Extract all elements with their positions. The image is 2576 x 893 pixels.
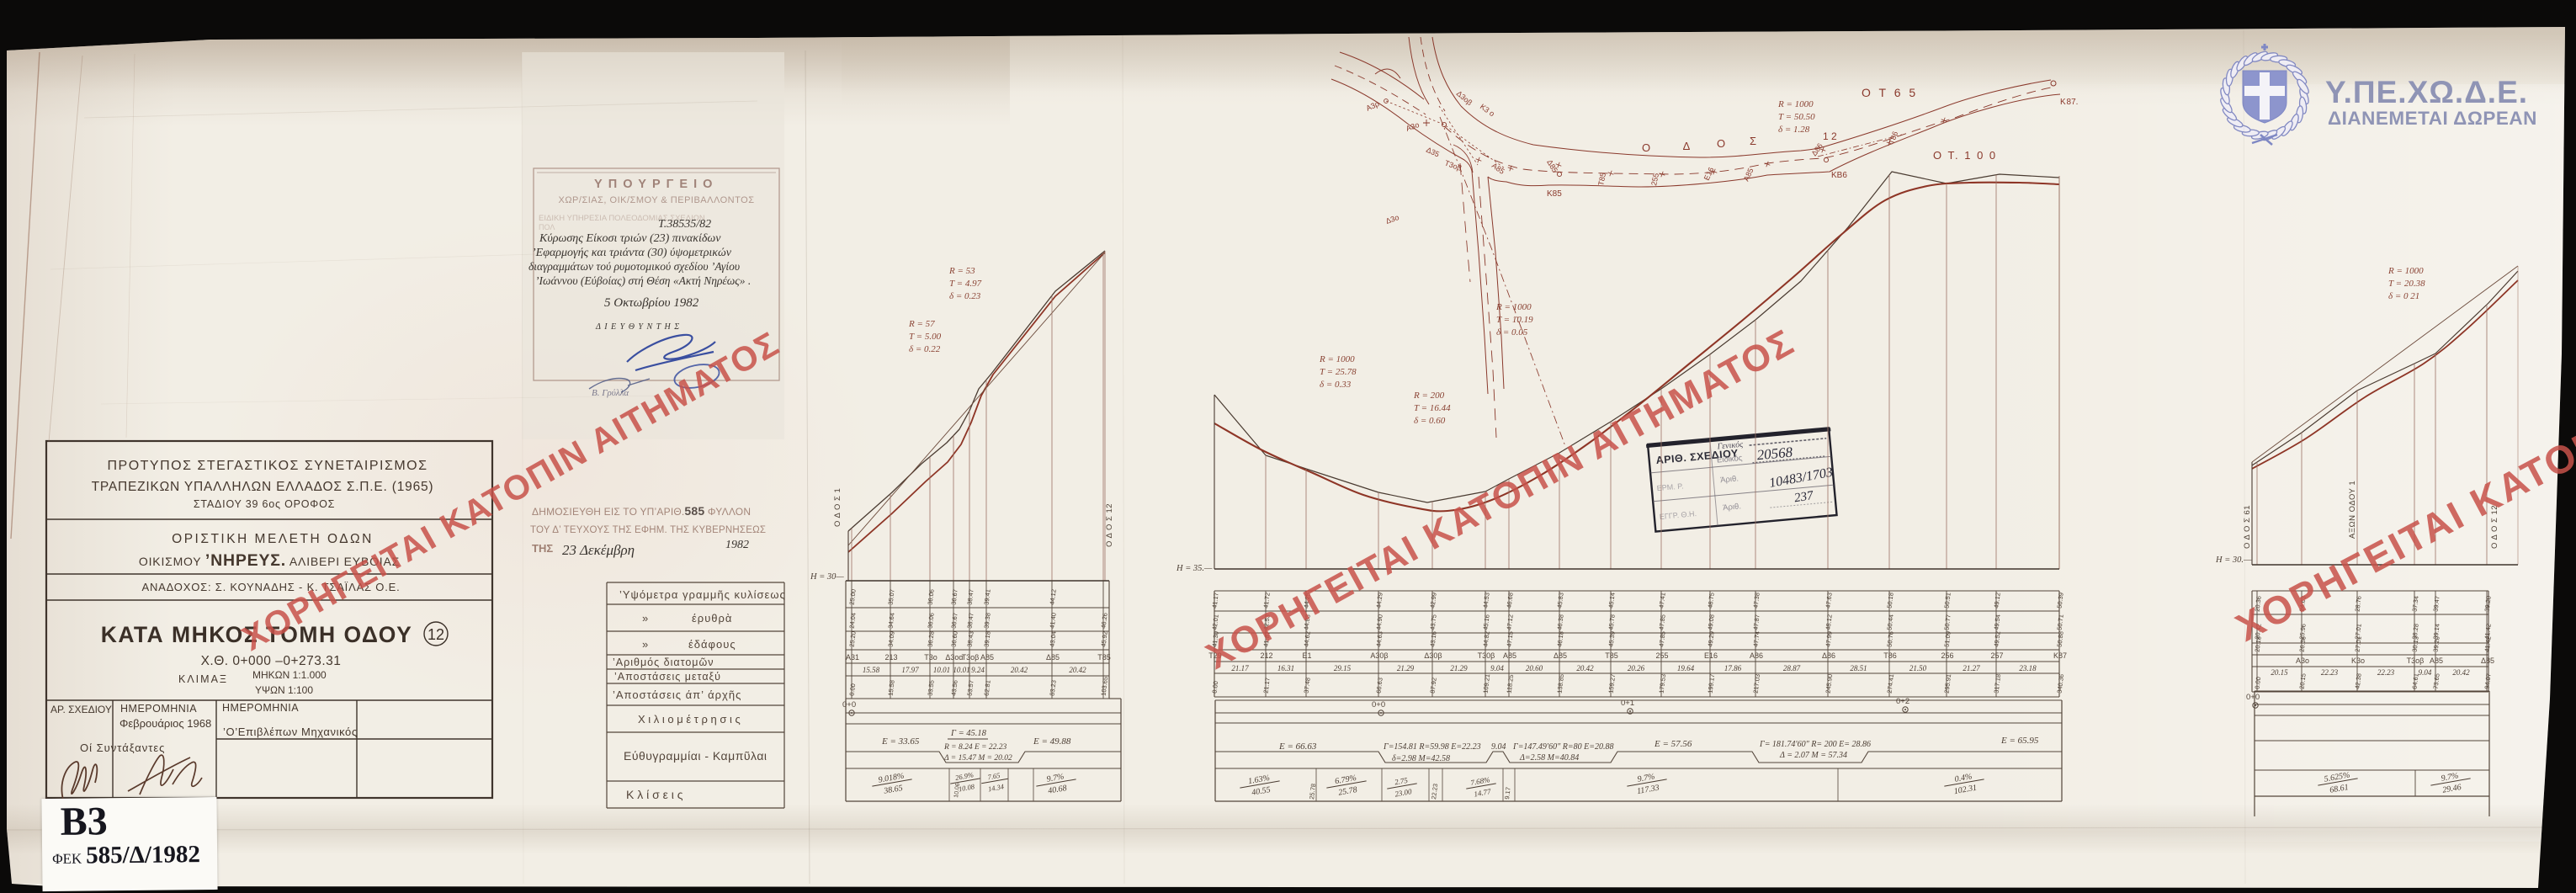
svg-text:50.39: 50.39 xyxy=(2056,593,2065,609)
svg-text:Είδικός: Είδικός xyxy=(1717,454,1744,465)
svg-text:9.7%: 9.7% xyxy=(1046,772,1065,784)
svg-text:Δ = 15.47 Μ = 20.02: Δ = 15.47 Μ = 20.02 xyxy=(943,754,1012,763)
svg-text:Υ Π Ο Υ Ρ Γ Ε Ι Ο: Υ Π Ο Υ Ρ Γ Ε Ι Ο xyxy=(594,178,714,191)
svg-text:46.68: 46.68 xyxy=(1506,593,1515,609)
svg-text:40.55: 40.55 xyxy=(1251,785,1271,798)
svg-text:28.51: 28.51 xyxy=(1850,664,1867,672)
svg-text:47.15: 47.15 xyxy=(1506,631,1515,648)
svg-text:47.63: 47.63 xyxy=(1824,593,1834,609)
svg-text:Γ = 45.18: Γ = 45.18 xyxy=(950,729,987,738)
svg-text:44.82: 44.82 xyxy=(1482,631,1491,648)
svg-text:Ε = 57.56: Ε = 57.56 xyxy=(1654,739,1692,749)
svg-text:Δ85: Δ85 xyxy=(1554,651,1567,660)
svg-text:δ = 0 21: δ = 0 21 xyxy=(2388,291,2419,301)
svg-text:20.42: 20.42 xyxy=(1069,666,1086,674)
svg-text:44.12: 44.12 xyxy=(1049,589,1058,606)
svg-text:0.4%: 0.4% xyxy=(1954,772,1973,784)
svg-text:41.42: 41.42 xyxy=(2483,636,2493,653)
svg-text:21.17: 21.17 xyxy=(1231,664,1249,672)
svg-text:Η = 30.—: Η = 30.— xyxy=(2215,555,2252,565)
svg-text:21.29: 21.29 xyxy=(1450,664,1468,672)
svg-text:213: 213 xyxy=(884,653,897,662)
svg-text:48.75: 48.75 xyxy=(1707,593,1716,609)
svg-text:Α30β: Α30β xyxy=(1370,651,1388,660)
svg-text:40.68: 40.68 xyxy=(1047,784,1067,796)
svg-text:245.90: 245.90 xyxy=(1824,673,1835,694)
svg-text:20568: 20568 xyxy=(1756,444,1794,463)
svg-text:ΑΡ. ΣΧΕΔΙΟΥ: ΑΡ. ΣΧΕΔΙΟΥ xyxy=(50,704,112,715)
svg-text:Γ=147.49′60″ R=80 Ε=20.88: Γ=147.49′60″ R=80 Ε=20.88 xyxy=(1512,742,1614,752)
svg-text:Άριθ.: Άριθ. xyxy=(1723,502,1742,513)
svg-text:Δ86: Δ86 xyxy=(1822,651,1835,660)
svg-text:20.42: 20.42 xyxy=(1576,664,1594,672)
svg-text:14.34: 14.34 xyxy=(987,782,1005,793)
svg-text:37.34: 37.34 xyxy=(2411,596,2420,613)
svg-text:23.00: 23.00 xyxy=(1394,787,1413,798)
svg-text:Εύθυγραμμίαι - Καμπῦλαι: Εύθυγραμμίαι - Καμπῦλαι xyxy=(624,749,767,763)
svg-text:36.28: 36.28 xyxy=(927,631,936,648)
svg-text:20.15: 20.15 xyxy=(2298,673,2308,690)
svg-text:Γ=154.81 R=59.98 Ε=22.23: Γ=154.81 R=59.98 Ε=22.23 xyxy=(1383,742,1481,752)
svg-text:38.43: 38.43 xyxy=(966,631,975,648)
svg-text:Τ3ο: Τ3ο xyxy=(924,653,937,662)
svg-text:50.71: 50.71 xyxy=(2056,614,2065,631)
svg-text:Ο: Ο xyxy=(1717,137,1725,150)
svg-text:Γ= 181.74′60″ R= 200 Ε= 28.: Γ= 181.74′60″ R= 200 Ε= 28.86 xyxy=(1759,740,1871,749)
svg-text:50.51: 50.51 xyxy=(1943,593,1952,609)
svg-text:102.31: 102.31 xyxy=(1953,784,1978,797)
svg-text:27.01: 27.01 xyxy=(2354,636,2363,653)
svg-text:20.60: 20.60 xyxy=(1526,664,1543,672)
svg-text:20.42: 20.42 xyxy=(2452,668,2470,677)
svg-text:29.15: 29.15 xyxy=(1334,664,1352,672)
svg-text:36.67: 36.67 xyxy=(950,613,959,630)
svg-text:41.17: 41.17 xyxy=(1211,593,1220,609)
svg-text:159.27: 159.27 xyxy=(1607,673,1617,694)
svg-text:47.85: 47.85 xyxy=(1658,614,1667,631)
svg-text:10483/1703: 10483/1703 xyxy=(1768,465,1834,491)
svg-text:109.21: 109.21 xyxy=(1482,673,1492,694)
svg-text:68.61: 68.61 xyxy=(2329,783,2349,795)
svg-text:Α3ο: Α3ο xyxy=(2296,656,2309,665)
svg-text:22.23: 22.23 xyxy=(1430,784,1439,800)
svg-text:33.55: 33.55 xyxy=(927,680,936,697)
svg-text:δ = 0.23: δ = 0.23 xyxy=(949,291,981,301)
svg-text:45.16: 45.16 xyxy=(1482,614,1491,631)
svg-text:Τ30β: Τ30β xyxy=(1478,651,1495,660)
svg-text:35.07: 35.07 xyxy=(887,589,896,606)
svg-text:49.12: 49.12 xyxy=(1993,593,2002,609)
svg-text:199.17: 199.17 xyxy=(1707,673,1717,694)
svg-text:ΥΨΩΝ 1:100: ΥΨΩΝ 1:100 xyxy=(255,684,313,696)
svg-text:T = 10.19: T = 10.19 xyxy=(1496,315,1533,325)
svg-text:R = 200: R = 200 xyxy=(1413,391,1445,401)
svg-text:39.38: 39.38 xyxy=(983,613,992,630)
svg-text:R = 1000: R = 1000 xyxy=(2387,266,2424,276)
svg-text:0+0: 0+0 xyxy=(2246,693,2260,702)
svg-text:έδάφους: έδάφους xyxy=(688,638,736,651)
svg-text:Κ3ο: Κ3ο xyxy=(2351,656,2365,665)
svg-text:12: 12 xyxy=(428,626,444,643)
svg-text:Δ30β: Δ30β xyxy=(1424,651,1442,660)
svg-text:117.33: 117.33 xyxy=(1636,784,1660,796)
svg-text:256: 256 xyxy=(1941,651,1953,660)
svg-text:73.65: 73.65 xyxy=(2432,673,2441,690)
svg-text:38.47: 38.47 xyxy=(966,613,975,630)
svg-text:T = 20.38: T = 20.38 xyxy=(2388,279,2425,289)
svg-text:R = 8.24 Ε = 22.23: R = 8.24 Ε = 22.23 xyxy=(943,743,1007,752)
svg-text:Κ λ ί σ ε ι ς: Κ λ ί σ ε ι ς xyxy=(626,788,683,801)
svg-text:ΑΝΑΔΟΧΟΣ: Σ. ΚΟΥΝΑΔΗΣ - Κ. Τ: ΑΝΑΔΟΧΟΣ: Σ. ΚΟΥΝΑΔΗΣ - Κ. ΤΣΑΪΛΑΣ Ο.Ε. xyxy=(141,581,400,593)
svg-text:41.87: 41.87 xyxy=(1262,631,1272,648)
svg-text:26.36: 26.36 xyxy=(2298,636,2308,653)
svg-text:Α85: Α85 xyxy=(1742,167,1755,183)
svg-text:Τ3οβ: Τ3οβ xyxy=(1443,158,1463,172)
svg-text:δ = 0.33: δ = 0.33 xyxy=(1320,380,1352,390)
svg-text:Δ=2.58 Μ=40.84: Δ=2.58 Μ=40.84 xyxy=(1519,753,1579,763)
svg-text:15.58: 15.58 xyxy=(887,680,896,697)
svg-text:21.17: 21.17 xyxy=(1262,678,1272,694)
svg-text:Α85: Α85 xyxy=(2430,656,2443,665)
svg-text:Ε1: Ε1 xyxy=(1302,651,1311,660)
svg-text:36.06: 36.06 xyxy=(927,613,936,630)
svg-text:Κ3 ο: Κ3 ο xyxy=(1479,102,1496,118)
svg-text:Κύρωσης Είκοσι τριών (23) πινα: Κύρωσης Είκοσι τριών (23) πινακίδων xyxy=(539,232,721,245)
svg-text:ΠΟΛ: ΠΟΛ xyxy=(539,223,555,231)
svg-text:Α86: Α86 xyxy=(1750,651,1763,660)
svg-text:ΚΒ6: ΚΒ6 xyxy=(1831,171,1847,180)
svg-text:46.18: 46.18 xyxy=(1556,631,1565,648)
svg-text:274.41: 274.41 xyxy=(1886,673,1896,694)
svg-text:ΟΡΙΣΤΙΚΗ ΜΕΛΕΤΗ ΟΔΩΝ: ΟΡΙΣΤΙΚΗ ΜΕΛΕΤΗ ΟΔΩΝ xyxy=(172,532,374,546)
svg-text:19.64: 19.64 xyxy=(1677,664,1695,672)
svg-text:Α85: Α85 xyxy=(980,653,994,662)
svg-text:43.16: 43.16 xyxy=(1429,631,1438,648)
svg-text:29.46: 29.46 xyxy=(2441,783,2462,795)
svg-text:25.78: 25.78 xyxy=(1308,784,1317,800)
svg-text:49.54: 49.54 xyxy=(1993,614,2002,631)
svg-text:έρυθρὰ: έρυθρὰ xyxy=(692,612,732,625)
svg-text:47.74: 47.74 xyxy=(1752,631,1761,648)
svg-text:ΤΗΣ: ΤΗΣ xyxy=(532,542,553,555)
svg-text:0.00: 0.00 xyxy=(1211,681,1220,694)
svg-text:T = 16.44: T = 16.44 xyxy=(1414,403,1451,413)
svg-text:46.38: 46.38 xyxy=(1556,614,1565,631)
svg-text:41.40: 41.40 xyxy=(1049,613,1058,630)
svg-text:47.38: 47.38 xyxy=(1752,593,1761,609)
svg-text:24.04: 24.04 xyxy=(848,613,858,630)
svg-text:0+0: 0+0 xyxy=(842,700,856,710)
svg-text:44.83: 44.83 xyxy=(1303,614,1312,631)
svg-text:20.36: 20.36 xyxy=(2254,596,2263,613)
svg-text:47.87: 47.87 xyxy=(1752,614,1761,631)
svg-text:Η = 30—: Η = 30— xyxy=(810,572,844,582)
svg-text:T = 4.97: T = 4.97 xyxy=(949,279,982,289)
svg-text:0.00: 0.00 xyxy=(2254,677,2263,690)
svg-text:36.06: 36.06 xyxy=(927,589,936,606)
svg-text:43.56: 43.56 xyxy=(950,680,959,697)
svg-text:42.38: 42.38 xyxy=(2354,673,2363,690)
svg-text:237: 237 xyxy=(1793,489,1815,506)
svg-text:9.04: 9.04 xyxy=(1490,664,1504,672)
svg-text:Α3ρ: Α3ρ xyxy=(1365,99,1381,113)
svg-text:50.77: 50.77 xyxy=(1943,614,1952,631)
svg-text:R = 1000: R = 1000 xyxy=(1319,354,1355,364)
svg-text:39.20: 39.20 xyxy=(2483,596,2493,613)
svg-text:R = 57: R = 57 xyxy=(908,319,935,329)
svg-text:9.17: 9.17 xyxy=(1503,787,1512,800)
svg-text:δ = 0.22: δ = 0.22 xyxy=(909,344,941,354)
svg-text:0+0: 0+0 xyxy=(1372,700,1385,710)
svg-text:δ = 0.60: δ = 0.60 xyxy=(1414,416,1446,426)
svg-text:Κ85: Κ85 xyxy=(1547,189,1562,199)
svg-text:217.03: 217.03 xyxy=(1752,673,1762,694)
svg-text:50.18: 50.18 xyxy=(1886,593,1895,609)
svg-text:17.97: 17.97 xyxy=(901,666,919,674)
svg-text:45.83: 45.83 xyxy=(1556,593,1565,609)
svg-text:Δ = 2.07 Μ = 57.34: Δ = 2.07 Μ = 57.34 xyxy=(1779,751,1847,760)
svg-text:ΤΡΑΠΕΖΙΚΩΝ ΥΠΑΛΛΗΛΩΝ ΕΛΛΑΔΟΣ: ΤΡΑΠΕΖΙΚΩΝ ΥΠΑΛΛΗΛΩΝ ΕΛΛΑΔΟΣ Σ.Π.Ε. (196… xyxy=(92,480,434,494)
svg-text:Κ87: Κ87 xyxy=(2053,651,2067,660)
svg-text:Ο Δ Ο Σ 61: Ο Δ Ο Σ 61 xyxy=(2243,505,2252,549)
svg-text:T = 50.50: T = 50.50 xyxy=(1778,112,1815,122)
svg-text:Ε = 49.88: Ε = 49.88 xyxy=(1033,736,1071,747)
svg-text:51.09: 51.09 xyxy=(1943,631,1952,648)
svg-text:ΠΡΟΤΥΠΟΣ ΣΤΕΓΑΣΤΙΚΟΣ ΣΥΝΕΤΑΙ: ΠΡΟΤΥΠΟΣ ΣΤΕΓΑΣΤΙΚΟΣ ΣΥΝΕΤΑΙΡΙΣΜΟΣ xyxy=(107,459,428,473)
svg-text:ΚΛΙΜΑΞ: ΚΛΙΜΑΞ xyxy=(178,673,228,685)
svg-text:9.24: 9.24 xyxy=(971,666,985,674)
svg-text:14.77: 14.77 xyxy=(1474,787,1492,798)
svg-text:10.06: 10.06 xyxy=(953,783,961,798)
svg-text:25.78: 25.78 xyxy=(1337,785,1357,798)
svg-text:»: » xyxy=(642,638,648,651)
svg-text:Δ85: Δ85 xyxy=(2481,656,2494,665)
svg-text:340.36: 340.36 xyxy=(2056,673,2066,694)
svg-text:22.23: 22.23 xyxy=(2321,668,2339,677)
svg-text:47.85: 47.85 xyxy=(1658,631,1667,648)
svg-text:42.01: 42.01 xyxy=(1211,614,1220,631)
svg-text:15.58: 15.58 xyxy=(863,666,880,674)
svg-text:ΗΜΕΡΟΜΗΝΙΑ: ΗΜΕΡΟΜΗΝΙΑ xyxy=(222,702,299,714)
svg-text:R = 53: R = 53 xyxy=(948,266,975,276)
svg-text:Φεβρουάριος 1968: Φεβρουάριος 1968 xyxy=(120,717,211,730)
svg-text:41.30: 41.30 xyxy=(1211,631,1220,648)
svg-text:ΗΜΕΡΟΜΗΝΙΑ: ΗΜΕΡΟΜΗΝΙΑ xyxy=(120,703,197,715)
svg-text:62.81: 62.81 xyxy=(983,680,992,697)
svg-text:179.53: 179.53 xyxy=(1658,673,1668,694)
svg-text:Ε = 65.95: Ε = 65.95 xyxy=(2000,736,2039,746)
svg-text:Ο Δ Ο Σ 1: Ο Δ Ο Σ 1 xyxy=(833,488,842,527)
svg-text:49.29: 49.29 xyxy=(1707,631,1716,648)
svg-text:Τ86: Τ86 xyxy=(1887,130,1899,146)
svg-text:38.47: 38.47 xyxy=(966,589,975,606)
svg-text:34.09: 34.09 xyxy=(887,631,896,648)
svg-text:R = 1000: R = 1000 xyxy=(1777,99,1814,109)
svg-text:’Ο’Επιβλέπων Μηχανικός: ’Ο’Επιβλέπων Μηχανικός xyxy=(223,726,358,738)
svg-text:20.42: 20.42 xyxy=(1011,666,1028,674)
svg-text:43.04: 43.04 xyxy=(1049,631,1058,648)
svg-text:Α85: Α85 xyxy=(1503,651,1516,660)
svg-text:Τ85: Τ85 xyxy=(1596,172,1607,186)
svg-text:44.90: 44.90 xyxy=(1375,614,1384,631)
svg-text:44.53: 44.53 xyxy=(1482,593,1491,609)
svg-text:Ε = 33.65: Ε = 33.65 xyxy=(881,736,920,747)
svg-text:47.99: 47.99 xyxy=(1824,631,1834,648)
svg-text:41.72: 41.72 xyxy=(1262,593,1272,609)
svg-text:255: 255 xyxy=(1655,651,1668,660)
svg-text:83.23: 83.23 xyxy=(1049,680,1058,697)
svg-text:44.63: 44.63 xyxy=(1375,631,1384,648)
svg-text:Δ85: Δ85 xyxy=(1046,653,1060,662)
svg-text:66.63: 66.63 xyxy=(1375,678,1384,694)
svg-text:Τ85: Τ85 xyxy=(1605,651,1618,660)
svg-text:34.64: 34.64 xyxy=(887,613,896,630)
svg-text:ΟΙΚΙΣΜΟΥ ’ΝΗΡΕΥΣ. ΑΛΙΒΕΡΙ ΕΥΒΟ: ΟΙΚΙΣΜΟΥ ’ΝΗΡΕΥΣ. ΑΛΙΒΕΡΙ ΕΥΒΟΙΑΣ xyxy=(139,551,400,570)
svg-text:’Υψόμετρα γραμμῆς κυλίσεως: ’Υψόμετρα γραμμῆς κυλίσεως xyxy=(619,588,786,601)
svg-text:2.75: 2.75 xyxy=(1394,776,1409,787)
svg-text:Δ: Δ xyxy=(1683,140,1691,152)
svg-text:24.63: 24.63 xyxy=(2298,596,2308,613)
svg-text:50.88: 50.88 xyxy=(2056,631,2065,648)
svg-text:20.15: 20.15 xyxy=(2271,668,2288,677)
svg-text:Τ29: Τ29 xyxy=(1208,651,1222,660)
svg-text:49.52: 49.52 xyxy=(1993,631,2002,648)
svg-text:20.26: 20.26 xyxy=(1628,664,1645,672)
svg-text:118.25: 118.25 xyxy=(1506,674,1516,694)
svg-text:Α31: Α31 xyxy=(846,653,859,662)
svg-text:9.7%: 9.7% xyxy=(1637,772,1655,784)
svg-text:Χ ι λ ι ο μ έ τ ρ η σ ι ς: Χ ι λ ι ο μ έ τ ρ η σ ι ς xyxy=(638,713,741,726)
svg-text:28.76: 28.76 xyxy=(2354,596,2363,613)
svg-text:ΣΤΑΔΙΟΥ 39 6ος ΟΡΟΦΟΣ: ΣΤΑΔΙΟΥ 39 6ος ΟΡΟΦΟΣ xyxy=(194,498,335,510)
svg-text:44.62: 44.62 xyxy=(1303,631,1312,648)
svg-text:T = 25.78: T = 25.78 xyxy=(1320,367,1357,377)
svg-text:Ε16: Ε16 xyxy=(1704,651,1718,660)
svg-text:ΔΗΜΟΣΙΕΥΘΗ ΕΙΣ ΤΟ ΥΠ’ΑΡΙΘ.585: ΔΗΜΟΣΙΕΥΘΗ ΕΙΣ ΤΟ ΥΠ’ΑΡΙΘ.585 ΦΥΛΛΟΝ xyxy=(532,504,751,518)
svg-text:ΚΑΤΑ ΜΗΚΟΣ ΤΟΜΗ ΟΔΟΥ: ΚΑΤΑ ΜΗΚΟΣ ΤΟΜΗ ΟΔΟΥ xyxy=(101,622,413,647)
svg-text:103.65: 103.65 xyxy=(1100,676,1110,696)
svg-text:Δ35: Δ35 xyxy=(1425,146,1441,159)
svg-text:Τ85: Τ85 xyxy=(1097,653,1111,662)
svg-text:50.76: 50.76 xyxy=(1886,631,1895,648)
svg-text:Γενικός: Γενικός xyxy=(1716,440,1745,452)
svg-text:53.57: 53.57 xyxy=(966,680,975,697)
svg-text:42.53: 42.53 xyxy=(1262,614,1272,631)
svg-text:Τ.38535/82: Τ.38535/82 xyxy=(658,218,711,231)
svg-text:Α85: Α85 xyxy=(1490,161,1506,175)
svg-text:17.86: 17.86 xyxy=(1724,664,1742,672)
svg-text:257: 257 xyxy=(1990,651,2003,660)
svg-text:21.27: 21.27 xyxy=(1963,664,1980,672)
svg-text:9.04: 9.04 xyxy=(1491,742,1506,752)
svg-text:7.65: 7.65 xyxy=(987,771,1001,781)
svg-text:25.00: 25.00 xyxy=(848,589,858,606)
svg-text:T = 5.00: T = 5.00 xyxy=(909,332,942,342)
svg-text:Οί Συντάξαντες: Οί Συντάξαντες xyxy=(80,742,165,754)
svg-text:44.29: 44.29 xyxy=(1375,593,1384,609)
svg-text:Ε = 66.63: Ε = 66.63 xyxy=(1278,742,1317,752)
svg-text:10.01: 10.01 xyxy=(933,666,950,674)
svg-text:9.04: 9.04 xyxy=(2419,668,2432,677)
svg-text:1 2: 1 2 xyxy=(1823,130,1837,142)
svg-text:’Αποστάσεις άπ’ άρχῆς: ’Αποστάσεις άπ’ άρχῆς xyxy=(613,688,741,701)
svg-text:317.18: 317.18 xyxy=(1993,673,2003,694)
svg-text:Η = 35.—: Η = 35.— xyxy=(1176,564,1213,573)
svg-text:43.75: 43.75 xyxy=(1429,614,1438,631)
svg-text:49.08: 49.08 xyxy=(1707,614,1716,631)
svg-text:28.87: 28.87 xyxy=(1783,664,1801,672)
svg-text:Τ3οβ: Τ3οβ xyxy=(2407,656,2425,665)
svg-text:ΑΞΩΝ ΟΔΟΥ 1: ΑΞΩΝ ΟΔΟΥ 1 xyxy=(2348,481,2357,539)
svg-text:50.44: 50.44 xyxy=(1886,614,1895,631)
svg-text:ΤΟΥ Δ’ ΤΕΥΧΟΥΣ ΤΗΣ ΕΦΗΜ. ΤΗΣ Κ: ΤΟΥ Δ’ ΤΕΥΧΟΥΣ ΤΗΣ ΕΦΗΜ. ΤΗΣ ΚΥΒΕΡΝΗΣΕΩΣ xyxy=(530,525,766,535)
svg-text:δ=2.98 Μ=42.58: δ=2.98 Μ=42.58 xyxy=(1392,754,1450,763)
svg-text:255: 255 xyxy=(1649,173,1660,187)
svg-text:94.07: 94.07 xyxy=(2483,673,2493,690)
svg-text:ΔΙΑΝΕΜΕΤΑΙ ΔΩΡΕΑΝ: ΔΙΑΝΕΜΕΤΑΙ ΔΩΡΕΑΝ xyxy=(2328,108,2537,129)
svg-text:45.92: 45.92 xyxy=(1100,631,1109,648)
svg-text:295.91: 295.91 xyxy=(1943,673,1953,694)
svg-text:ΜΗΚΩΝ 1:1.000: ΜΗΚΩΝ 1:1.000 xyxy=(252,669,327,681)
svg-text:Ο Δ Ο Σ 12: Ο Δ Ο Σ 12 xyxy=(1105,503,1114,547)
svg-text:Ο: Ο xyxy=(1642,141,1650,154)
svg-text:Ο Τ. 1 0 0: Ο Τ. 1 0 0 xyxy=(1933,149,1997,162)
svg-text:Τ3οβ: Τ3οβ xyxy=(962,653,980,662)
svg-text:39.41: 39.41 xyxy=(983,589,992,606)
svg-text:30.13: 30.13 xyxy=(2411,636,2420,653)
svg-text:138.85: 138.85 xyxy=(1556,673,1566,694)
svg-text:0+1: 0+1 xyxy=(1621,699,1634,708)
svg-text:Χ.Θ. 0+000 –0+273.31: Χ.Θ. 0+000 –0+273.31 xyxy=(201,654,342,668)
svg-text:22.23: 22.23 xyxy=(2377,668,2395,677)
svg-text:212: 212 xyxy=(1260,651,1272,660)
svg-text:36.67: 36.67 xyxy=(950,589,959,606)
svg-text:0.00: 0.00 xyxy=(848,683,858,697)
svg-text:διαγραμμάτων τού ρυμοτομικού σ: διαγραμμάτων τού ρυμοτομικού σχεδίου ’Αγ… xyxy=(528,260,740,273)
svg-text:25.20: 25.20 xyxy=(848,631,858,648)
svg-text:36.60: 36.60 xyxy=(950,631,959,648)
svg-text:Δ3ο: Δ3ο xyxy=(1384,213,1400,226)
svg-text:0+2: 0+2 xyxy=(1896,697,1909,706)
svg-text:87.92: 87.92 xyxy=(1429,678,1438,694)
svg-text:38.65: 38.65 xyxy=(882,784,903,796)
svg-text:39.47: 39.47 xyxy=(2432,596,2441,613)
svg-text:44.25: 44.25 xyxy=(1303,593,1312,609)
svg-text:ΕΡΜ. Ρ.: ΕΡΜ. Ρ. xyxy=(1656,481,1684,492)
svg-text:39.18: 39.18 xyxy=(983,631,992,648)
svg-text:20.18: 20.18 xyxy=(2254,636,2263,653)
svg-text:Κ 87.: Κ 87. xyxy=(2060,98,2078,107)
svg-text:21.29: 21.29 xyxy=(1397,664,1415,672)
svg-text:Δ Ι Ε Υ Θ Υ Ν Τ Η Σ: Δ Ι Ε Υ Θ Υ Ν Τ Η Σ xyxy=(595,322,680,332)
svg-text:Άριθ.: Άριθ. xyxy=(1720,474,1739,485)
svg-text:9.7%: 9.7% xyxy=(2441,771,2459,783)
svg-text:’Αριθμός διατομῶν: ’Αριθμός διατομῶν xyxy=(613,656,714,668)
svg-text:Δ3οβ: Δ3οβ xyxy=(1455,89,1474,107)
svg-text:46.26: 46.26 xyxy=(1100,613,1109,630)
svg-text:10.01: 10.01 xyxy=(953,666,969,674)
svg-text:45.78: 45.78 xyxy=(1607,614,1617,631)
svg-text:48.12: 48.12 xyxy=(1824,614,1834,631)
svg-text:23 Δεκέμβρη: 23 Δεκέμβρη xyxy=(562,542,635,558)
svg-text:Τ86: Τ86 xyxy=(1883,651,1897,660)
svg-text:Υ.ΠΕ.ΧΩ.Δ.Ε.: Υ.ΠΕ.ΧΩ.Δ.Ε. xyxy=(2325,75,2528,109)
svg-text:’Αποστάσεις μεταξύ: ’Αποστάσεις μεταξύ xyxy=(614,671,721,683)
svg-text:Δ3οα: Δ3οα xyxy=(945,653,963,662)
svg-text:Ο Τ 6 5: Ο Τ 6 5 xyxy=(1862,86,1918,99)
svg-text:δ = 1.28: δ = 1.28 xyxy=(1778,125,1810,135)
svg-text:Ο Δ Ο Σ 12: Ο Δ Ο Σ 12 xyxy=(2490,505,2499,549)
